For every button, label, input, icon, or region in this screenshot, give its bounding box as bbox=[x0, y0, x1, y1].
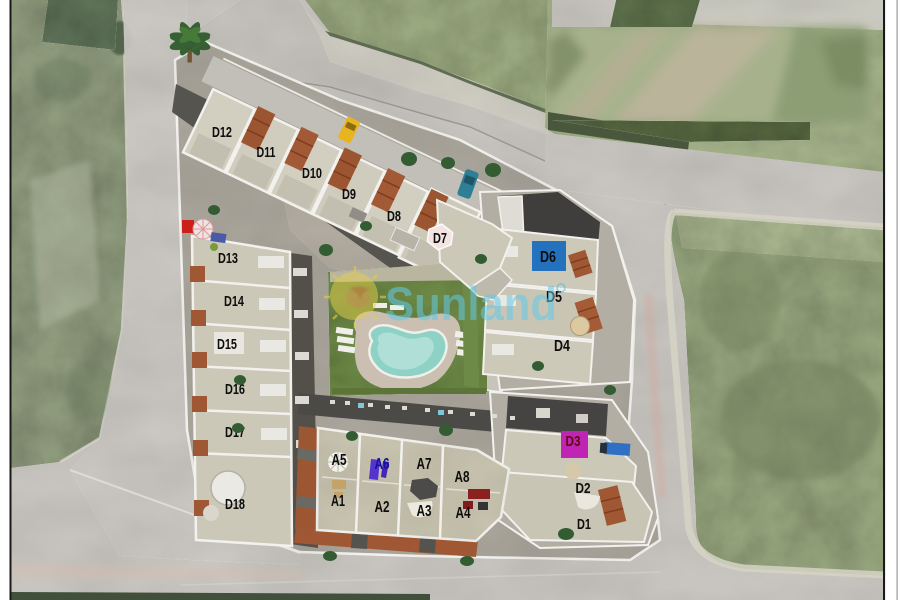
svg-text:A4: A4 bbox=[456, 505, 471, 522]
svg-text:D13: D13 bbox=[218, 250, 238, 267]
svg-text:A5: A5 bbox=[332, 452, 347, 469]
svg-text:D18: D18 bbox=[225, 496, 245, 513]
svg-text:A3: A3 bbox=[417, 503, 432, 520]
svg-text:A1: A1 bbox=[331, 493, 345, 510]
svg-text:D15: D15 bbox=[217, 336, 237, 353]
svg-text:D6: D6 bbox=[540, 249, 556, 266]
svg-text:Sunland: Sunland bbox=[385, 277, 557, 330]
svg-text:D14: D14 bbox=[224, 293, 244, 310]
svg-text:D9: D9 bbox=[342, 186, 356, 203]
svg-text:D2: D2 bbox=[576, 480, 591, 497]
svg-text:A7: A7 bbox=[417, 456, 432, 473]
svg-text:D11: D11 bbox=[257, 144, 276, 161]
svg-text:D10: D10 bbox=[302, 165, 322, 182]
svg-text:D12: D12 bbox=[212, 124, 232, 141]
svg-text:D1: D1 bbox=[577, 516, 591, 533]
svg-text:D4: D4 bbox=[554, 338, 570, 355]
svg-text:D8: D8 bbox=[387, 208, 401, 225]
svg-text:A6: A6 bbox=[375, 456, 390, 473]
svg-text:A8: A8 bbox=[455, 469, 470, 486]
svg-text:A2: A2 bbox=[375, 499, 390, 516]
svg-text:D7: D7 bbox=[433, 230, 447, 247]
svg-text:D3: D3 bbox=[566, 433, 581, 450]
